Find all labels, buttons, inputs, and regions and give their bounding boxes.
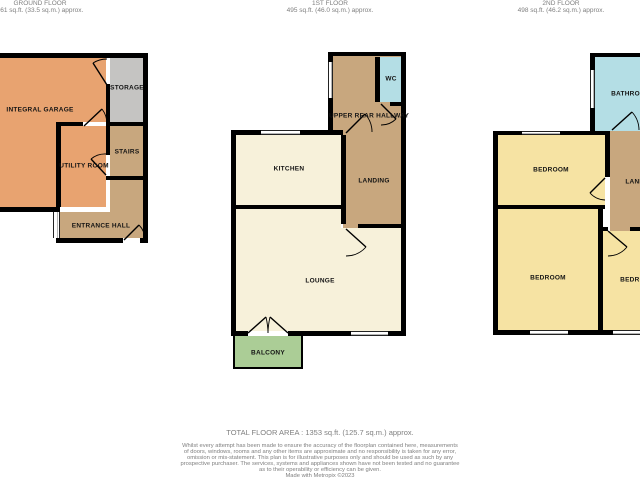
wall	[56, 122, 83, 126]
room-label-bedroom-3: BEDROOM	[620, 277, 640, 284]
room-label-entrance-hall: ENTRANCE HALL	[72, 223, 131, 230]
wall	[106, 122, 143, 126]
room-label-stairs: STAIRS	[115, 149, 140, 156]
window	[530, 330, 568, 335]
room-lounge	[341, 228, 401, 331]
room-label-bedroom-2: BEDROOM	[530, 275, 566, 282]
disclaimer: Whilst every attempt has been made to en…	[70, 443, 570, 479]
wall	[288, 331, 351, 336]
metropix-credit: Made with Metropix ©2023	[70, 473, 570, 479]
window	[590, 70, 595, 108]
room-label-bedroom-1: BEDROOM	[533, 167, 569, 174]
room-label-bathroom: BATHROOM	[611, 91, 640, 98]
room-lounge	[236, 209, 341, 331]
room-label-kitchen: KITCHEN	[274, 166, 305, 173]
wall	[328, 52, 406, 56]
wall	[140, 238, 148, 243]
wall	[110, 176, 143, 180]
floor-header-ground: GROUND FLOOR 361 sq.ft. (33.5 sq.m.) app…	[0, 1, 150, 14]
window	[328, 62, 333, 98]
balcony-wall	[233, 367, 303, 369]
wall	[630, 227, 640, 231]
floor-header-first: 1ST FLOOR 495 sq.ft. (46.0 sq.m.) approx…	[220, 1, 440, 14]
wall	[493, 330, 530, 335]
wall	[236, 205, 341, 209]
wall	[341, 135, 346, 224]
wall	[590, 53, 640, 57]
floor-area: 498 sq.ft. (46.2 sq.m.) approx.	[451, 8, 640, 15]
wall	[56, 238, 123, 243]
window	[53, 212, 60, 238]
window	[522, 131, 560, 135]
wall	[560, 131, 610, 135]
window	[261, 130, 300, 135]
wall	[603, 227, 608, 231]
room-label-landing-2nd: LANDING	[625, 179, 640, 186]
balcony-wall	[233, 336, 235, 367]
window	[351, 331, 388, 336]
wall	[590, 108, 595, 131]
floor-area: 495 sq.ft. (46.0 sq.m.) approx.	[220, 8, 440, 15]
floorplan-page: GROUND FLOOR 361 sq.ft. (33.5 sq.m.) app…	[0, 0, 640, 480]
wall	[605, 135, 610, 177]
room-label-wc: WC	[385, 76, 396, 83]
wall	[0, 53, 148, 58]
room-label-utility: UTILITY ROOM	[59, 163, 108, 170]
wall	[401, 52, 406, 336]
floor-area: 361 sq.ft. (33.5 sq.m.) approx.	[0, 8, 150, 15]
room-label-lounge: LOUNGE	[305, 278, 334, 285]
window	[613, 330, 640, 335]
room-label-storage: STORAGE	[110, 85, 144, 92]
wall	[388, 331, 406, 336]
room-label-upper-rear-hallway: UPPER REAR HALLWAY	[329, 113, 409, 120]
room-hall-lower	[110, 180, 143, 212]
room-bedroom-2	[498, 209, 598, 330]
room-label-balcony: BALCONY	[251, 350, 285, 357]
room-integral-garage	[0, 122, 56, 207]
wall	[375, 57, 380, 102]
wall	[106, 122, 110, 155]
room-label-integral-garage: INTEGRAL GARAGE	[6, 107, 73, 114]
wall	[590, 57, 595, 70]
wall	[300, 130, 343, 135]
room-label-landing-1st: LANDING	[358, 178, 389, 185]
wall	[568, 330, 613, 335]
wall	[0, 207, 60, 212]
wall	[390, 102, 401, 106]
total-floor-area: TOTAL FLOOR AREA : 1353 sq.ft. (125.7 sq…	[0, 428, 640, 437]
wall	[498, 205, 605, 209]
balcony-wall	[301, 336, 303, 367]
floor-header-second: 2ND FLOOR 498 sq.ft. (46.2 sq.m.) approx…	[451, 1, 640, 14]
wall	[358, 224, 401, 228]
wall	[493, 135, 498, 335]
wall	[231, 135, 236, 336]
